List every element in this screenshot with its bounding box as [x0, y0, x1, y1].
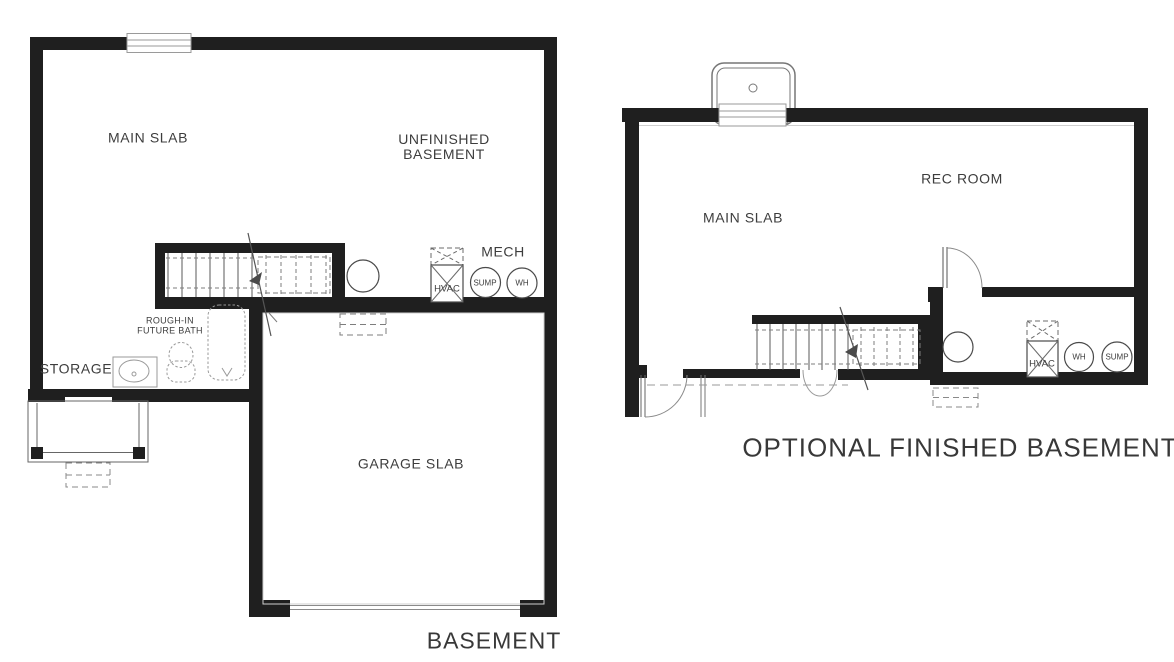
- storage-label: STORAGE: [40, 362, 112, 377]
- basement-plan: [28, 34, 557, 618]
- finished-basement-walls: [622, 108, 1148, 417]
- wall-stub: [701, 375, 705, 417]
- main-slab-right-label: MAIN SLAB: [703, 211, 783, 226]
- unfinished-line1: UNFINISHED: [398, 132, 490, 147]
- garage-door-icon: [290, 606, 520, 610]
- rough-in-bath-label: ROUGH-IN FUTURE BATH: [137, 317, 203, 336]
- rough-in-line2: FUTURE BATH: [137, 326, 203, 336]
- hvac-right-label: HVAC: [1029, 357, 1055, 372]
- door-swing-left-icon: [641, 375, 687, 417]
- mech-label: MECH: [481, 245, 525, 260]
- garage-slab-label: GARAGE SLAB: [358, 457, 464, 472]
- wh-right-label: WH: [1072, 350, 1085, 365]
- optional-finished-basement-title: OPTIONAL FINISHED BASEMENT: [742, 441, 1174, 456]
- floorplan-page: MAIN SLAB UNFINISHED BASEMENT MECH HVAC …: [0, 0, 1174, 662]
- finished-basement-plan: [622, 63, 1148, 417]
- arched-opening-icon: [803, 370, 837, 396]
- mech-door-swing-icon: [943, 247, 982, 288]
- sink-icon: [113, 357, 157, 387]
- floor-drain-icon: [347, 260, 379, 292]
- basement-title: BASEMENT: [427, 634, 562, 649]
- wh-label: WH: [515, 276, 528, 291]
- rec-room-window-icon: [719, 104, 786, 126]
- bathtub-icon: [208, 305, 245, 380]
- well-steps-dashed: [66, 463, 110, 487]
- rec-room-label: REC ROOM: [921, 172, 1003, 187]
- garage-landing-dashed: [269, 313, 386, 335]
- window-well-icon: [28, 401, 148, 462]
- unfinished-line2: BASEMENT: [398, 147, 490, 162]
- sump-right-label: SUMP: [1105, 350, 1128, 365]
- basement-walls: [28, 37, 557, 617]
- floor-drain-icon: [943, 332, 973, 362]
- basement-window-icon: [127, 34, 191, 53]
- unfinished-basement-label: UNFINISHED BASEMENT: [398, 132, 490, 162]
- main-slab-label: MAIN SLAB: [108, 131, 188, 146]
- mech-pad-dashed: [933, 388, 978, 407]
- toilet-icon: [167, 343, 195, 383]
- sump-label: SUMP: [473, 276, 496, 291]
- hvac-label: HVAC: [434, 282, 460, 297]
